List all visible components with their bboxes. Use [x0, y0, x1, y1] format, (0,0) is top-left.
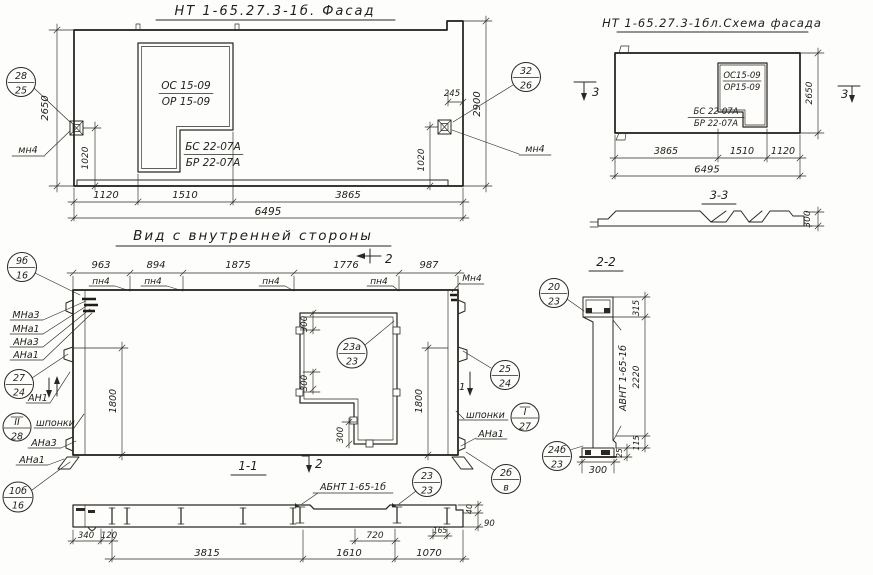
blueprint-sheet: НТ 1-65.27.3-1б. Фасад ОС 15-09 ОР 15-09…	[0, 0, 873, 575]
section22-label: АВНТ 1-65-1б	[618, 345, 629, 412]
callout-i-27-den: 27	[519, 422, 531, 433]
facade-sill-mark-2: БР 22-07А	[186, 157, 241, 169]
facade-dim-b2: 1510	[172, 190, 197, 201]
facade-panel-outline	[74, 21, 463, 186]
facade-bottom-strip	[77, 180, 448, 186]
section11-rib-bars	[109, 508, 450, 524]
section11-label-text: АБНТ 1-65-1б	[319, 482, 386, 493]
facade-anchor-right	[438, 120, 451, 134]
section11-dim-90: 90	[484, 519, 495, 529]
callout-23-23: 23 23	[399, 468, 442, 505]
label-mna3-text: МНа3	[12, 310, 39, 321]
section11-dim-120: 120	[101, 531, 117, 541]
interior-right-edge-keys	[458, 300, 467, 451]
schema-dim-height: 2650	[800, 48, 824, 139]
callout-32-26: 32 26	[453, 63, 541, 123]
schema-window-mark-2: ОР15-09	[724, 83, 761, 93]
interior-title: Вид с внутренней стороны	[133, 228, 373, 244]
facade-anchor-label-right-text: мн4	[525, 144, 544, 155]
facade-dim-b3: 3865	[335, 190, 360, 201]
interior-dim-1800-right: 1800	[414, 342, 448, 460]
section-2-2: 2-2 АВНТ 1-65-1б 20 23 24б 23	[540, 255, 651, 476]
schema-section3-left-text: 3	[592, 85, 599, 99]
section-1-1: 1-1 АБНТ 1-65-1б 23 23	[3, 459, 495, 562]
section11-label: АБНТ 1-65-1б	[302, 482, 393, 504]
interior-window-inner-line	[304, 317, 393, 440]
interior-dim-t1: 963	[91, 260, 110, 271]
blueprint-canvas: НТ 1-65.27.3-1б. Фасад ОС 15-09 ОР 15-09…	[0, 0, 873, 575]
section11-dim-3815: 3815	[194, 548, 219, 559]
facade-dim-height-right-text: 2900	[472, 91, 483, 116]
facade-schema-view: НТ 1-65.27.3-1бл.Схема фасада ОС15-09 ОР…	[574, 16, 860, 179]
callout-28-25: 28 25	[7, 68, 71, 123]
section11-dims-lower: 3815 1610 1070	[105, 530, 469, 562]
facade-dim-anchor-right-text: 1020	[417, 148, 427, 171]
callout-23a-23-den: 23	[346, 357, 358, 368]
section11-dims-upper: 340 120 720 165	[68, 526, 452, 544]
label-ana1-right-text: АНа1	[477, 429, 504, 440]
callout-27-24-den: 24	[13, 388, 25, 399]
section1-right-text: 1	[459, 382, 465, 393]
label-ana1-text: АНа1	[12, 350, 39, 361]
schema-dim-b3: 1120	[771, 146, 795, 157]
interior-pn4-flags: пн4 пн4 пн4 пн4	[89, 277, 399, 291]
interior-dim-1800-left-text: 1800	[108, 389, 119, 413]
pn4-label-4: пн4	[370, 277, 388, 287]
interior-dim-t2: 894	[146, 260, 165, 271]
callout-ii-28-den: 28	[11, 432, 23, 443]
interior-section2-mark-top: 2	[356, 249, 393, 266]
section11-dim-1610: 1610	[336, 548, 361, 559]
label-ana1-bottom-text: АНа1	[18, 455, 45, 466]
interior-window-opening	[300, 313, 397, 444]
section22-dim-25: 25	[615, 448, 624, 458]
callout-24b-23: 24б 23	[543, 442, 584, 471]
interior-corner-anchors-right	[450, 295, 457, 300]
interior-dim-300-top-text: 300	[300, 316, 310, 332]
callout-23a-23-num: 23а	[343, 342, 361, 353]
callout-32-26-den: 26	[520, 81, 532, 92]
callout-2b-v-num: 2б	[500, 468, 512, 479]
schema-section3-right-text: 3	[841, 87, 848, 101]
interior-window-fix-mark-4	[393, 389, 400, 396]
callout-32-26-num: 32	[520, 66, 532, 77]
facade-anchor-left	[70, 121, 83, 135]
callout-27-24-num: 27	[13, 373, 25, 384]
interior-view: Вид с внутренней стороны 963 894 1875 17…	[3, 228, 539, 494]
interior-dim-1800-left: 1800	[73, 342, 128, 460]
facade-dim-bottom: 1120 1510 3865 6495	[68, 132, 469, 221]
interior-dim-t5: 987	[419, 260, 439, 271]
section11-dim-40: 40	[465, 504, 474, 514]
facade-window-mark-2: ОР 15-09	[162, 96, 211, 108]
schema-edge-tabs	[616, 46, 629, 140]
interior-window-fix-mark-6	[366, 440, 373, 447]
interior-corner-piece-right	[452, 457, 473, 469]
callout-10b-16: 10б 16	[3, 462, 70, 512]
facade-view: НТ 1-65.27.3-1б. Фасад ОС 15-09 ОР 15-09…	[7, 4, 552, 221]
callout-i-27-num: I	[524, 407, 527, 418]
facade-dim-total: 6495	[255, 206, 282, 218]
section11-dim-165: 165	[433, 526, 448, 535]
schema-window-mark-1: ОС15-09	[723, 71, 760, 81]
callout-2b-v: 2б в	[466, 452, 521, 494]
section22-dim-315: 315	[632, 300, 642, 316]
section22-profile	[580, 297, 621, 457]
facade-title: НТ 1-65.27.3-1б. Фасад	[175, 4, 376, 19]
facade-dim-height-right: 2900	[463, 16, 492, 192]
callout-23a-23: 23а 23	[337, 321, 394, 368]
interior-panel-inner-lines	[85, 290, 448, 455]
facade-dim-height-text: 2650	[40, 95, 51, 120]
facade-anchor-label-left: мн4	[12, 131, 70, 156]
label-shponki-left: шпонки	[34, 414, 84, 429]
schema-dim-height-text: 2650	[805, 81, 815, 104]
interior-dim-300-mid-text: 300	[300, 375, 310, 391]
mn4-label: Мн4	[462, 274, 482, 284]
callout-ii-28-num: II	[14, 417, 20, 428]
label-mna1-text: МНа1	[12, 324, 39, 335]
interior-dim-300-mid: 300	[300, 369, 320, 394]
section-3-3: 3-3 300	[590, 188, 824, 231]
section11-dim-340: 340	[78, 531, 94, 541]
label-shponki-right-text: шпонки	[466, 410, 505, 421]
callout-20-23: 20 23	[540, 279, 585, 312]
callout-23-23-num: 23	[421, 471, 433, 482]
interior-dim-t3: 1875	[225, 260, 250, 271]
callout-25-24-den: 24	[499, 379, 511, 390]
callout-20-23-den: 23	[548, 297, 560, 308]
facade-sill-mark-1: БС 22-07А	[185, 141, 241, 153]
schema-dim-bottom: 3865 1510 1120 6495	[610, 129, 806, 179]
section2-bottom-text: 2	[315, 457, 323, 471]
interior-window-fix-mark-3	[393, 327, 400, 334]
callout-20-23-num: 20	[548, 282, 560, 293]
section33-dim-thickness: 300	[803, 207, 824, 231]
facade-lifting-loops	[136, 24, 239, 30]
schema-section3-mark-left: 3	[574, 82, 599, 101]
interior-panel-outline	[73, 290, 458, 455]
schema-dim-total: 6495	[694, 165, 719, 176]
label-an1-text: АН1	[27, 393, 48, 404]
label-ana3-text: АНа3	[12, 337, 39, 348]
callout-23-23-den: 23	[421, 486, 433, 497]
label-ana1-bottom: АНа1	[16, 455, 64, 466]
callout-28-25-den: 25	[15, 86, 27, 97]
label-shponki-right: шпонки	[456, 410, 508, 421]
section22-dim-300: 300	[589, 465, 607, 476]
section11-dim-1070: 1070	[416, 548, 441, 559]
callout-24b-23-num: 24б	[548, 445, 566, 456]
callout-24b-23-den: 23	[551, 460, 563, 471]
callout-2b-v-den: в	[503, 483, 509, 494]
facade-dim-offset-text: 245	[444, 89, 460, 99]
section33-profile	[598, 211, 812, 226]
section33-dim-thickness-text: 300	[803, 210, 813, 227]
callout-ii-28: II 28	[3, 413, 31, 443]
callout-i-27: I 27	[511, 403, 539, 433]
callout-9b-16-den: 16	[16, 271, 28, 282]
section22-dim-2220: 2220	[632, 365, 642, 388]
callout-25-24-num: 25	[499, 364, 511, 375]
schema-dim-b2: 1510	[730, 146, 754, 157]
label-shponki-left-text: шпонки	[36, 418, 75, 429]
section22-dim-115: 115	[632, 435, 641, 450]
callout-25-24: 25 24	[463, 351, 520, 390]
facade-window-mark-1: ОС 15-09	[161, 80, 211, 92]
label-ana3-bottom: АНа3	[28, 438, 76, 449]
callout-10b-16-num: 10б	[9, 486, 27, 497]
callout-9b-16: 9б 16	[8, 253, 81, 296]
section11-title: 1-1	[238, 459, 258, 473]
interior-window-fix-mark-5	[350, 417, 357, 424]
interior-dim-t4: 1776	[333, 260, 358, 271]
section33-left-tail	[590, 222, 598, 227]
section22-title: 2-2	[596, 255, 616, 269]
schema-section3-mark-right: 3	[838, 86, 860, 103]
schema-dim-b1: 3865	[654, 146, 678, 157]
interior-section2-mark-bottom: 2	[302, 456, 323, 473]
schema-sill-mark-1: БС 22-07А	[694, 107, 739, 117]
callout-9b-16-num: 9б	[16, 256, 28, 267]
schema-sill-mark-2: БР 22-07А	[694, 119, 738, 129]
label-ana3-bottom-text: АНа3	[30, 438, 57, 449]
pn4-label-2: пн4	[144, 277, 162, 287]
label-mna3: МНа3	[10, 301, 86, 321]
callout-10b-16-den: 16	[12, 501, 24, 512]
facade-dim-b1: 1120	[93, 190, 118, 201]
label-ana1-right: АНа1	[461, 429, 507, 446]
pn4-label-1: пн4	[92, 277, 110, 287]
facade-anchor-label-right: мн4	[452, 130, 551, 155]
interior-dim-1800-right-text: 1800	[414, 389, 425, 413]
section11-dim-720: 720	[366, 531, 383, 541]
interior-dim-300-bot-text: 300	[336, 427, 346, 443]
facade-anchor-label-left-text: мн4	[18, 145, 37, 156]
callout-28-25-num: 28	[15, 71, 27, 82]
section33-title: 3-3	[710, 188, 729, 202]
facade-dim-height-left: 2650	[40, 24, 74, 192]
facade-dim-anchor-left-text: 1020	[81, 146, 91, 169]
section2-top-text: 2	[385, 252, 393, 266]
pn4-label-3: пн4	[262, 277, 280, 287]
section11-slab-outline	[73, 505, 463, 527]
schema-title: НТ 1-65.27.3-1бл.Схема фасада	[602, 16, 822, 30]
